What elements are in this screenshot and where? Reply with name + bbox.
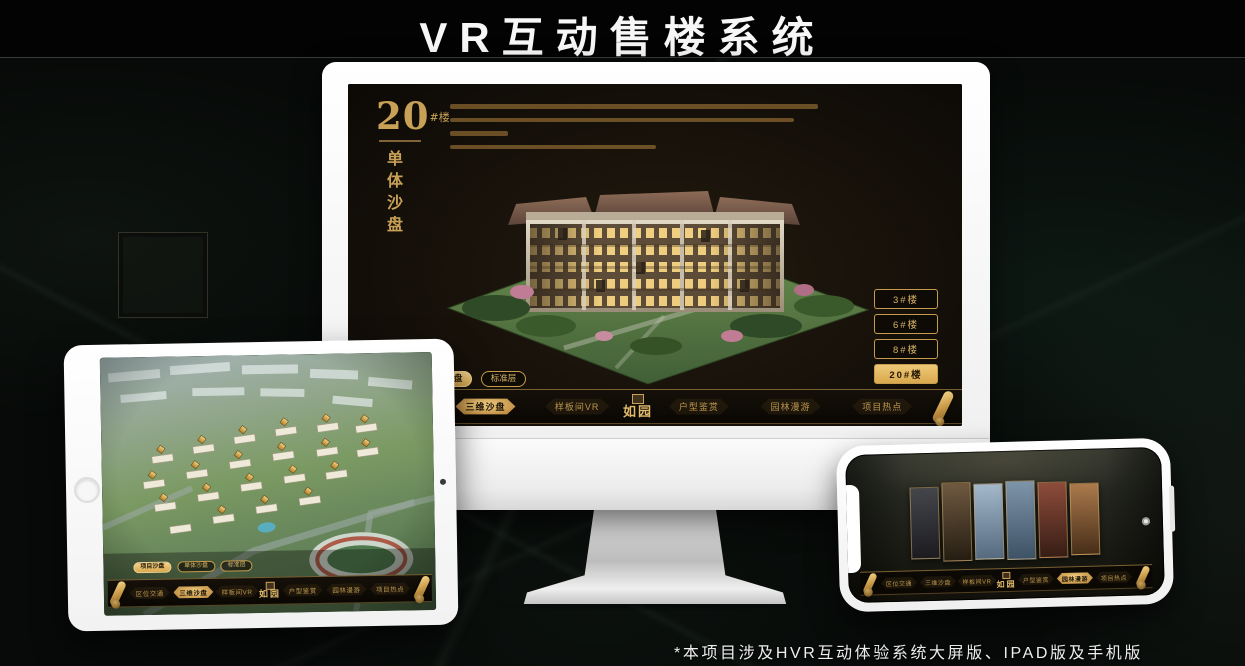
menu-item-label: 三维沙盘 bbox=[920, 575, 956, 588]
menu-item-label: 项目热点 bbox=[852, 398, 912, 415]
floor-button-label: 20#楼 bbox=[889, 370, 922, 381]
phone-bottom-menu: 区位交通 三维沙盘 样板间VR 如园 户型鉴赏 园林漫游 项目热点 bbox=[860, 564, 1153, 596]
panorama-gallery bbox=[909, 479, 1100, 563]
gallery-panel[interactable] bbox=[941, 482, 972, 562]
menu-item-label: 三维沙盘 bbox=[173, 585, 213, 599]
description-line bbox=[450, 131, 508, 136]
menu-item-garden-tour[interactable]: 园林漫游 bbox=[1055, 572, 1094, 585]
block-subtitle-vertical: 单体沙盘 bbox=[381, 150, 405, 238]
monitor-stand bbox=[495, 508, 815, 604]
gallery-panel[interactable] bbox=[1037, 481, 1068, 558]
gallery-panel[interactable] bbox=[1069, 482, 1100, 555]
menu-item-label: 区位交通 bbox=[130, 586, 170, 600]
tab-label: 标准层 bbox=[491, 373, 517, 383]
scroll-icon[interactable] bbox=[413, 575, 431, 602]
menu-item-label: 区位交通 bbox=[881, 576, 917, 589]
gallery-panel[interactable] bbox=[973, 483, 1004, 560]
tab-label: 项目沙盘 bbox=[140, 564, 164, 570]
description-line bbox=[450, 118, 794, 123]
ruyuan-logo[interactable]: 如园 bbox=[259, 582, 281, 600]
tab-single-sandbox[interactable]: 单体沙盘 bbox=[177, 561, 215, 573]
tab-standard-floor[interactable]: 标准层 bbox=[221, 560, 253, 571]
tab-label: 标准层 bbox=[228, 562, 246, 568]
tablet-device: 项目沙盘 单体沙盘 标准层 区位交通 三维沙盘 样板间VR 如园 户型鉴赏 园林… bbox=[64, 339, 459, 632]
ruyuan-logo[interactable]: 如园 bbox=[996, 572, 1016, 589]
menu-item-location[interactable]: 区位交通 bbox=[879, 576, 918, 589]
floor-button-8[interactable]: 8#楼 bbox=[874, 339, 938, 359]
background-sign-frame bbox=[118, 232, 208, 318]
floor-button-group: 3#楼 6#楼 8#楼 20#楼 bbox=[874, 289, 938, 384]
menu-item-location[interactable]: 区位交通 bbox=[128, 586, 172, 600]
building-model-render[interactable] bbox=[436, 140, 876, 386]
logo-text: 如园 bbox=[259, 591, 281, 600]
building-block-title: 20#楼 bbox=[376, 94, 450, 138]
menu-item-garden-tour[interactable]: 园林漫游 bbox=[324, 583, 368, 597]
menu-item-label: 园林漫游 bbox=[761, 398, 821, 415]
menu-item-model-room-vr[interactable]: 样板间VR bbox=[215, 585, 259, 599]
menu-item-label: 户型鉴赏 bbox=[669, 398, 729, 415]
menu-item-floorplan[interactable]: 户型鉴赏 bbox=[653, 398, 745, 415]
menu-item-label: 样板间VR bbox=[215, 585, 258, 599]
menu-item-garden-tour[interactable]: 园林漫游 bbox=[745, 398, 837, 415]
menu-item-floorplan[interactable]: 户型鉴赏 bbox=[281, 583, 325, 597]
menu-item-3d-sandbox[interactable]: 三维沙盘 bbox=[171, 585, 215, 599]
scroll-icon[interactable] bbox=[862, 572, 877, 595]
menu-item-label: 样板间VR bbox=[545, 398, 610, 415]
ruyuan-logo[interactable]: 如园 bbox=[623, 394, 653, 419]
phone-screen: 区位交通 三维沙盘 样板间VR 如园 户型鉴赏 园林漫游 项目热点 bbox=[845, 447, 1165, 603]
camera-dot-icon bbox=[1142, 517, 1150, 525]
menu-item-label: 户型鉴赏 bbox=[1018, 573, 1054, 586]
camera-dot-icon bbox=[440, 479, 446, 485]
scroll-icon[interactable] bbox=[931, 389, 955, 424]
poster-canvas: VR互动售楼系统 20#楼 单体沙盘 bbox=[0, 0, 1245, 666]
tab-label: 单体沙盘 bbox=[184, 563, 208, 569]
block-suffix: #楼 bbox=[430, 111, 450, 124]
menu-item-hotspots[interactable]: 项目热点 bbox=[836, 398, 928, 415]
floor-button-label: 8#楼 bbox=[893, 345, 919, 356]
scroll-icon[interactable] bbox=[1135, 565, 1150, 588]
floor-button-20[interactable]: 20#楼 bbox=[874, 364, 938, 384]
seal-icon bbox=[265, 582, 274, 590]
menu-item-label: 样板间VR bbox=[957, 574, 996, 587]
floor-button-label: 6#楼 bbox=[893, 320, 919, 331]
tab-standard-floor[interactable]: 标准层 bbox=[481, 371, 527, 387]
page-title: VR互动售楼系统 bbox=[0, 4, 1245, 65]
menu-item-label: 三维沙盘 bbox=[456, 398, 516, 415]
menu-item-label: 园林漫游 bbox=[1057, 572, 1093, 585]
scroll-icon[interactable] bbox=[109, 580, 127, 607]
menu-item-label: 户型鉴赏 bbox=[283, 583, 323, 597]
tablet-screen: 项目沙盘 单体沙盘 标准层 区位交通 三维沙盘 样板间VR 如园 户型鉴赏 园林… bbox=[100, 352, 436, 616]
phone-device: 区位交通 三维沙盘 样板间VR 如园 户型鉴赏 园林漫游 项目热点 bbox=[836, 438, 1174, 613]
logo-text: 如园 bbox=[623, 406, 653, 419]
block-number: 20 bbox=[376, 94, 430, 138]
tablet-bottom-menu: 区位交通 三维沙盘 样板间VR 如园 户型鉴赏 园林漫游 项目热点 bbox=[108, 574, 432, 608]
floor-button-6[interactable]: 6#楼 bbox=[874, 314, 938, 334]
floor-button-3[interactable]: 3#楼 bbox=[874, 289, 938, 309]
floor-button-label: 3#楼 bbox=[893, 295, 919, 306]
gallery-panel[interactable] bbox=[909, 486, 940, 559]
menu-item-3d-sandbox[interactable]: 三维沙盘 bbox=[918, 575, 957, 588]
menu-item-model-room-vr[interactable]: 样板间VR bbox=[957, 574, 996, 587]
menu-item-label: 项目热点 bbox=[1096, 571, 1132, 584]
footnote-text: *本项目涉及HVR互动体验系统大屏版、IPAD版及手机版 bbox=[674, 639, 1143, 663]
home-button[interactable] bbox=[74, 477, 100, 503]
seal-icon bbox=[632, 394, 644, 404]
menu-item-hotspots[interactable]: 项目热点 bbox=[368, 582, 412, 596]
logo-text: 如园 bbox=[996, 580, 1016, 589]
phone-side-button[interactable] bbox=[1169, 486, 1175, 532]
menu-item-label: 项目热点 bbox=[370, 582, 410, 596]
title-rule bbox=[379, 140, 421, 142]
menu-item-model-room-vr[interactable]: 样板间VR bbox=[531, 398, 623, 415]
menu-item-label: 园林漫游 bbox=[326, 583, 366, 597]
menu-item-floorplan[interactable]: 户型鉴赏 bbox=[1016, 573, 1055, 586]
gallery-panel[interactable] bbox=[1005, 480, 1036, 560]
phone-notch bbox=[845, 485, 861, 573]
menu-item-hotspots[interactable]: 项目热点 bbox=[1094, 571, 1133, 584]
tab-project-sandbox[interactable]: 项目沙盘 bbox=[133, 562, 171, 574]
tablet-view-tabs: 项目沙盘 单体沙盘 标准层 bbox=[133, 560, 257, 573]
description-line bbox=[450, 104, 818, 109]
